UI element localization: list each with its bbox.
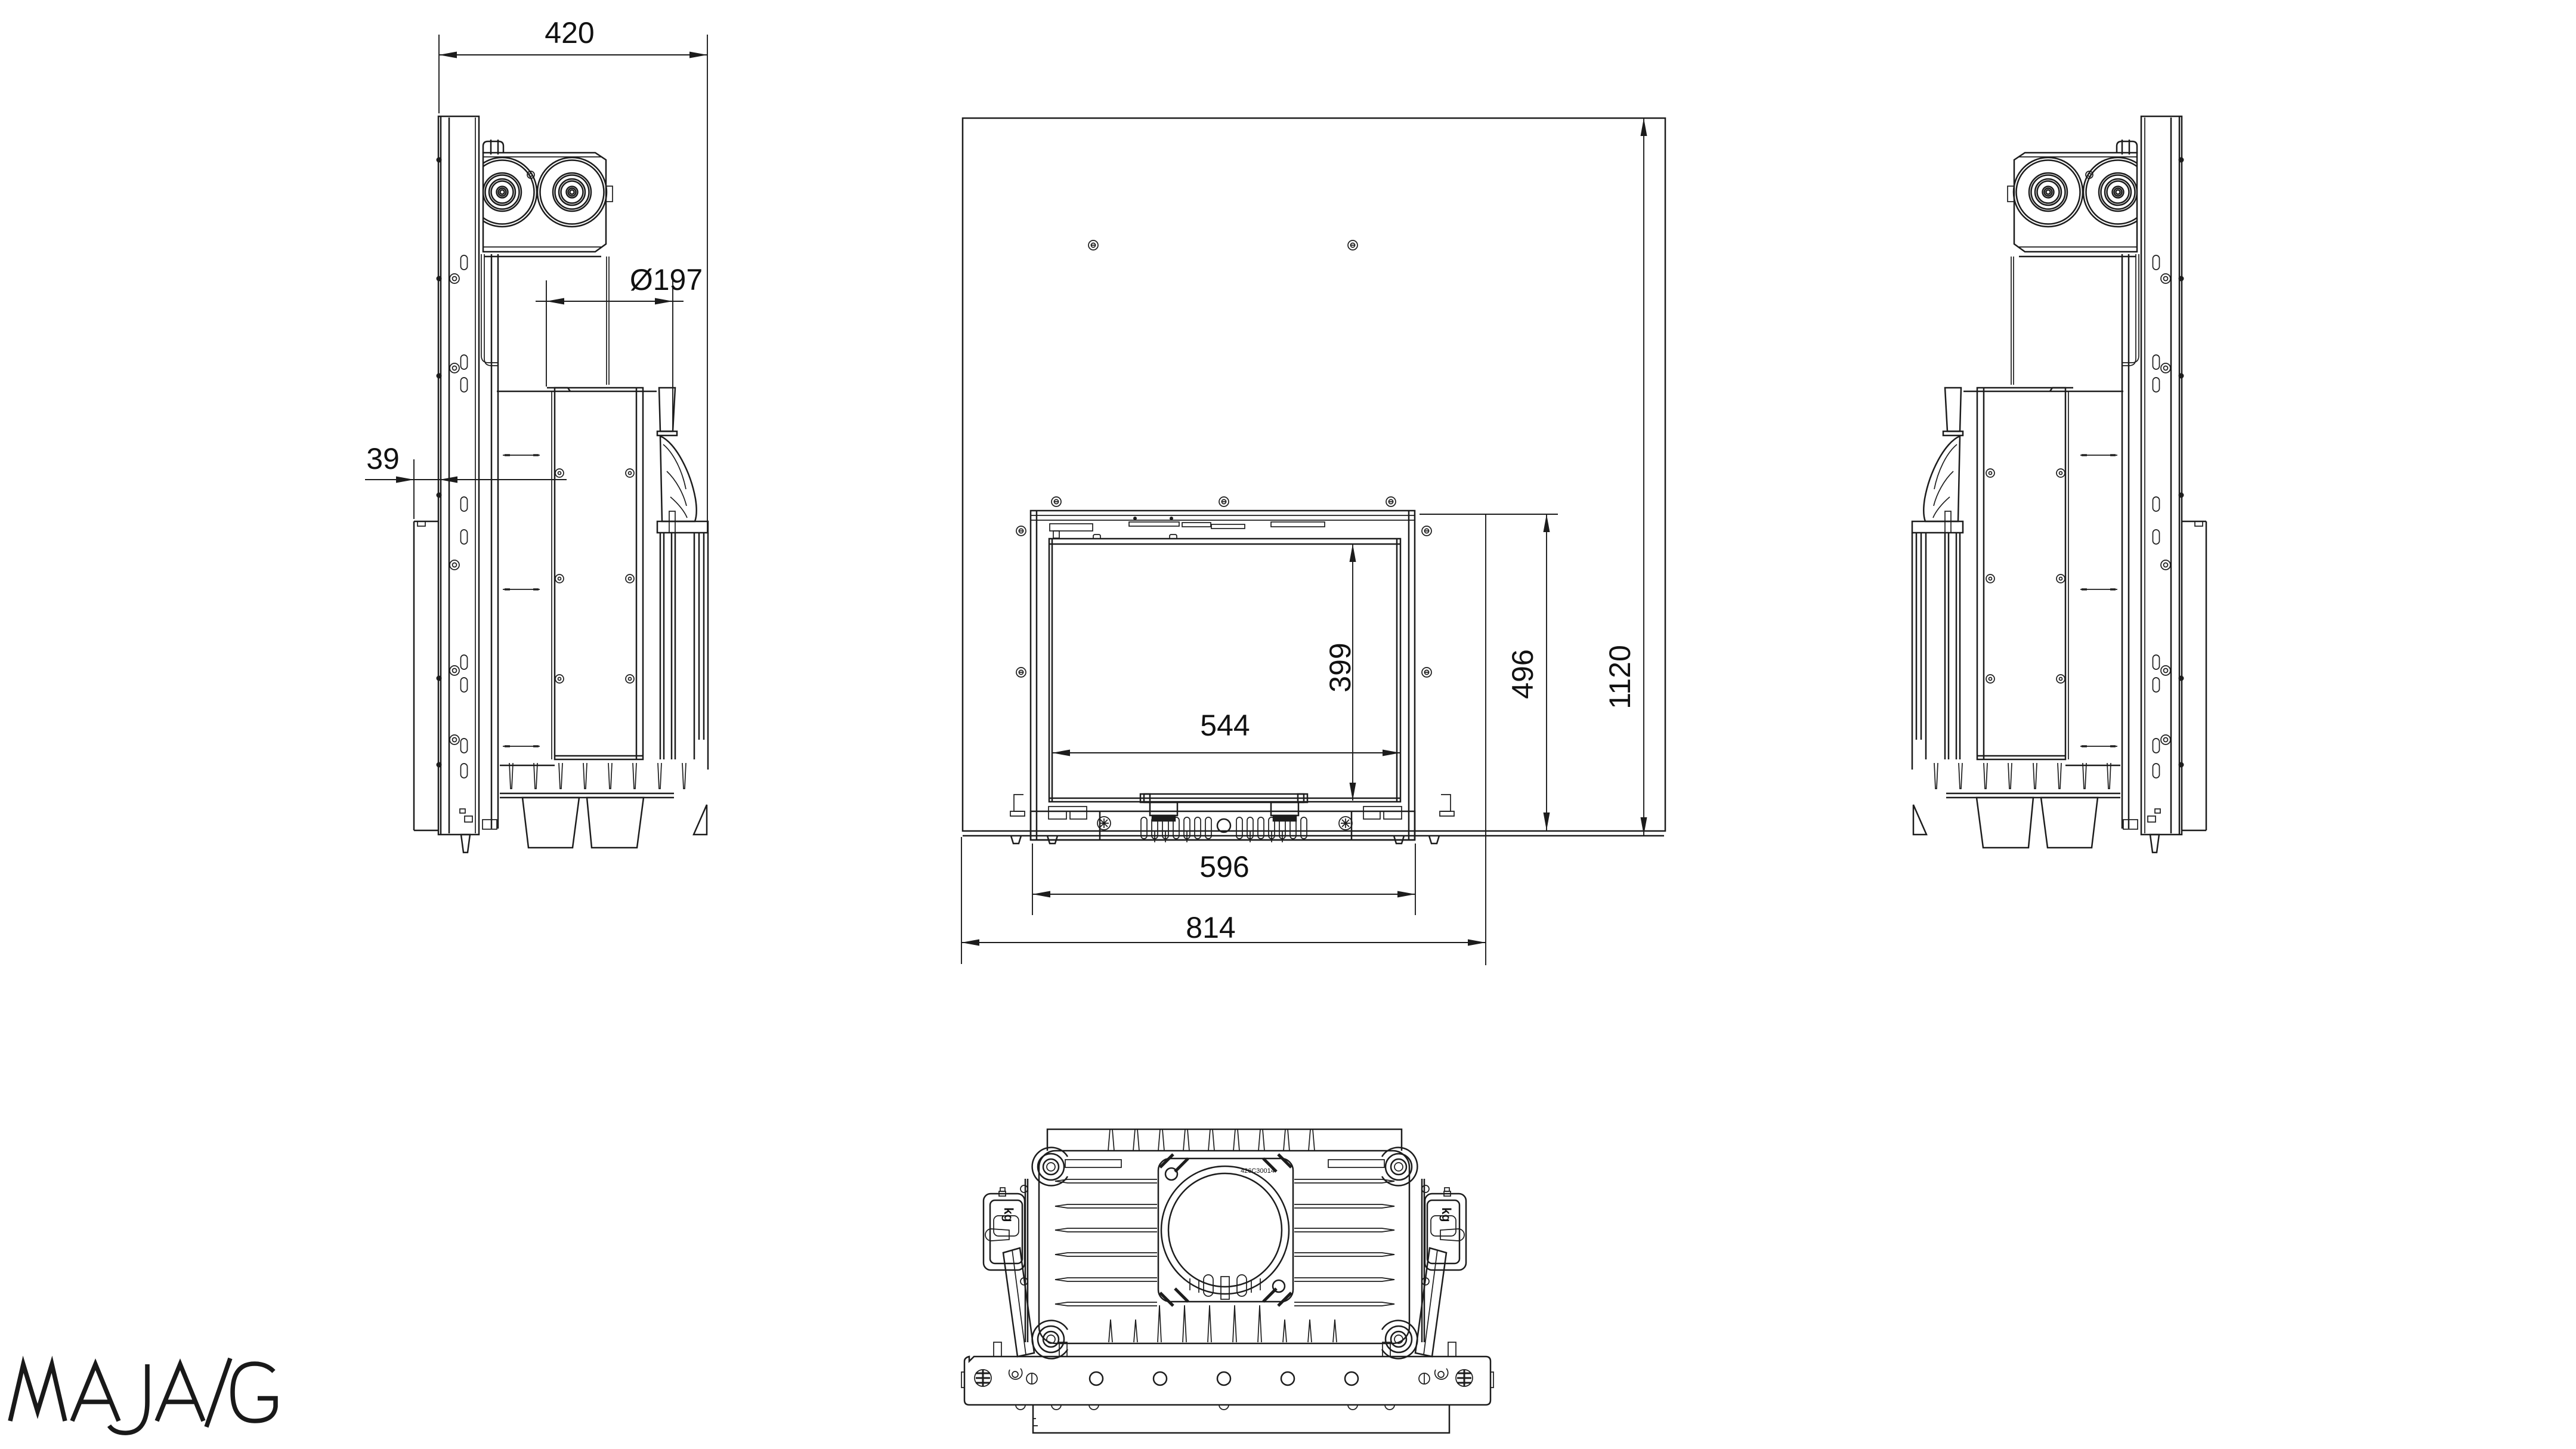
svg-text:39: 39 [366,442,400,475]
svg-text:kg: kg [1439,1207,1453,1222]
svg-text:Ø197: Ø197 [630,263,703,296]
svg-text:814: 814 [1186,911,1235,944]
svg-text:420: 420 [545,16,594,50]
svg-text:426C30014: 426C30014 [1241,1167,1275,1175]
svg-text:496: 496 [1506,649,1539,699]
svg-text:1120: 1120 [1603,645,1637,709]
svg-text:544: 544 [1200,709,1250,742]
svg-text:kg: kg [1001,1207,1015,1222]
svg-text:596: 596 [1199,850,1249,883]
svg-text:399: 399 [1323,642,1357,692]
